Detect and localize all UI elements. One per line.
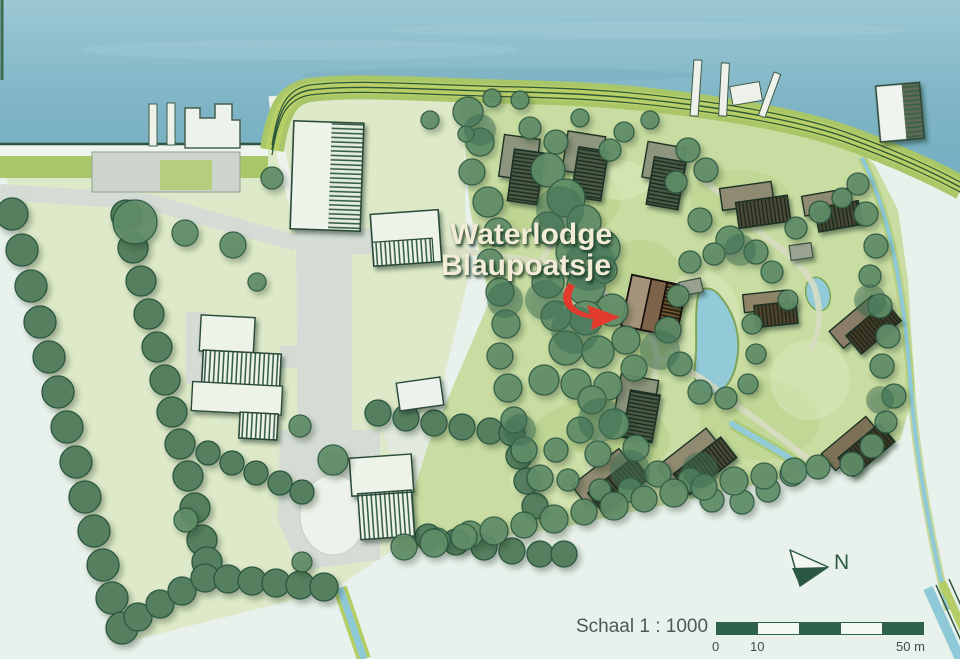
north-arrow-icon bbox=[790, 550, 828, 586]
scale-bar-segment bbox=[841, 623, 882, 634]
site-plan: Waterlodge Blaupoatsje N Schaal 1 : 1000… bbox=[0, 0, 960, 659]
map-title-line2: Blaupoatsje bbox=[441, 250, 612, 281]
map-title: Waterlodge Blaupoatsje bbox=[441, 219, 612, 281]
scale-bar-segment bbox=[882, 623, 923, 634]
farm-building bbox=[370, 210, 441, 267]
farm-shed-building bbox=[349, 454, 417, 540]
scale-bar-segment bbox=[758, 623, 799, 634]
scale-bar bbox=[716, 622, 924, 635]
canal bbox=[340, 588, 364, 659]
compass-label: N bbox=[834, 551, 849, 575]
garden-shed bbox=[789, 243, 813, 261]
scale-bar-segment bbox=[799, 623, 840, 634]
site-plan-map bbox=[0, 0, 960, 659]
map-title-line1: Waterlodge bbox=[441, 219, 612, 250]
farm-barn bbox=[290, 121, 364, 231]
white-shed bbox=[396, 377, 443, 411]
corner-road bbox=[928, 579, 960, 659]
boathouse-building bbox=[876, 82, 925, 142]
scale-tick-end: 50 m bbox=[896, 639, 925, 654]
scale-bar-segment bbox=[717, 623, 758, 634]
scale-label: Schaal 1 : 1000 bbox=[576, 616, 708, 638]
scale-tick-mid: 10 bbox=[750, 639, 764, 654]
scale-tick-start: 0 bbox=[712, 639, 719, 654]
